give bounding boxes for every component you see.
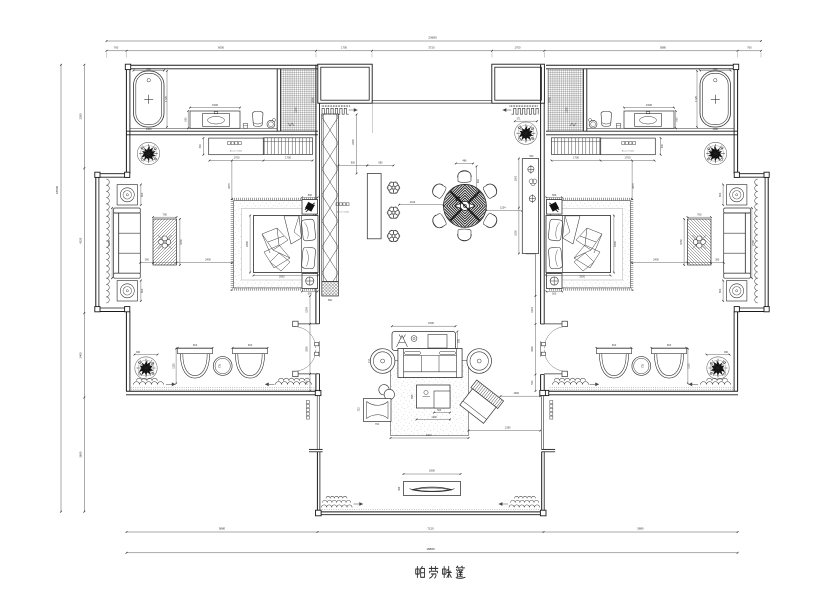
svg-text:1700: 1700 [625, 156, 631, 160]
svg-text:725: 725 [219, 363, 222, 368]
svg-text:1060: 1060 [713, 128, 719, 131]
svg-text:910: 910 [248, 343, 253, 347]
svg-text:900: 900 [351, 161, 356, 164]
svg-text:1204: 1204 [531, 307, 534, 313]
svg-text:800: 800 [147, 67, 152, 71]
svg-text:910: 910 [193, 343, 198, 347]
svg-text:500: 500 [531, 380, 534, 385]
svg-text:760: 760 [747, 45, 752, 49]
svg-text:550: 550 [185, 117, 188, 122]
svg-text:2400: 2400 [426, 434, 432, 437]
svg-text:2700: 2700 [107, 240, 111, 246]
svg-text:2000: 2000 [279, 276, 285, 279]
svg-text:600: 600 [141, 288, 144, 293]
svg-text:500: 500 [308, 194, 313, 197]
svg-text:1800: 1800 [531, 346, 534, 352]
svg-text:720: 720 [357, 407, 360, 412]
svg-text:764: 764 [375, 423, 380, 426]
svg-text:1204: 1204 [306, 307, 309, 313]
svg-text:500: 500 [308, 293, 313, 296]
svg-text:590: 590 [378, 161, 383, 164]
svg-text:5880: 5880 [637, 527, 644, 531]
svg-text:390: 390 [145, 259, 150, 262]
svg-text:2200: 2200 [352, 139, 355, 145]
svg-text:1700: 1700 [573, 156, 579, 160]
svg-text:Accent Table: Accent Table [230, 149, 243, 152]
svg-text:1135: 1135 [173, 363, 176, 369]
svg-text:600: 600 [719, 192, 722, 197]
svg-text:6000: 6000 [218, 45, 224, 49]
svg-text:910: 910 [667, 343, 672, 347]
svg-text:2000: 2000 [312, 97, 315, 103]
svg-text:1800: 1800 [613, 241, 617, 247]
svg-text:23680: 23680 [428, 36, 437, 40]
svg-text:1500: 1500 [428, 321, 434, 325]
svg-text:714: 714 [368, 358, 371, 363]
svg-text:500: 500 [328, 299, 333, 302]
svg-text:1260: 1260 [431, 416, 437, 419]
svg-text:3720: 3720 [429, 45, 435, 49]
svg-text:7120: 7120 [427, 527, 434, 531]
svg-text:1500: 1500 [515, 175, 518, 181]
svg-text:360: 360 [724, 351, 729, 354]
svg-text:371: 371 [517, 117, 522, 120]
svg-text:2430: 2430 [205, 258, 211, 262]
svg-text:390: 390 [715, 259, 720, 262]
svg-text:1014: 1014 [410, 201, 416, 204]
svg-text:500: 500 [458, 338, 461, 343]
svg-text:810: 810 [477, 178, 480, 183]
svg-text:500: 500 [306, 380, 309, 385]
svg-text:1050: 1050 [680, 239, 683, 245]
svg-text:520: 520 [437, 409, 442, 412]
svg-text:1500: 1500 [515, 230, 518, 236]
svg-text:1670: 1670 [632, 183, 635, 189]
svg-text:500: 500 [529, 155, 534, 158]
svg-text:700: 700 [697, 213, 702, 217]
svg-text:1800: 1800 [245, 241, 249, 247]
svg-text:600: 600 [141, 192, 144, 197]
svg-text:1500: 1500 [212, 103, 218, 107]
svg-text:1700: 1700 [234, 156, 240, 160]
svg-text:5880: 5880 [660, 45, 666, 49]
svg-text:1725: 1725 [694, 96, 698, 102]
svg-text:1200: 1200 [566, 107, 569, 113]
svg-text:1500: 1500 [646, 103, 652, 107]
svg-text:2700: 2700 [751, 240, 755, 246]
svg-text:600: 600 [719, 288, 722, 293]
svg-text:500: 500 [199, 144, 202, 149]
svg-text:4320: 4320 [79, 237, 83, 243]
svg-text:1060: 1060 [146, 128, 152, 131]
svg-text:910: 910 [612, 343, 617, 347]
svg-text:2400: 2400 [79, 352, 83, 358]
svg-text:760: 760 [114, 45, 119, 49]
svg-text:725: 725 [641, 363, 644, 368]
svg-text:2000: 2000 [579, 276, 585, 279]
svg-text:Accent Table: Accent Table [622, 149, 635, 152]
svg-text:18860: 18860 [55, 185, 59, 194]
svg-text:500: 500 [552, 194, 557, 197]
svg-text:1234: 1234 [500, 207, 506, 210]
svg-text:800: 800 [713, 67, 718, 71]
svg-text:350: 350 [398, 486, 401, 491]
svg-text:5880: 5880 [219, 527, 226, 531]
svg-text:Accent Table: Accent Table [337, 211, 350, 214]
svg-text:1700: 1700 [285, 156, 291, 160]
svg-text:700: 700 [163, 213, 168, 217]
svg-text:500: 500 [661, 144, 664, 149]
svg-text:486: 486 [462, 160, 467, 163]
svg-text:1670: 1670 [228, 183, 231, 189]
svg-text:655: 655 [411, 394, 414, 399]
svg-text:18880: 18880 [426, 547, 435, 551]
svg-text:2190: 2190 [505, 427, 511, 430]
svg-text:2430: 2430 [653, 258, 659, 262]
svg-text:2280: 2280 [79, 113, 83, 119]
svg-text:550: 550 [675, 117, 678, 122]
svg-text:3600: 3600 [79, 451, 83, 457]
svg-text:2000: 2000 [548, 97, 551, 103]
svg-text:1135: 1135 [688, 363, 691, 369]
svg-text:360: 360 [136, 351, 141, 354]
svg-text:1390: 1390 [513, 392, 519, 395]
svg-text:1200: 1200 [294, 107, 297, 113]
svg-text:1800: 1800 [429, 469, 435, 473]
svg-text:1800: 1800 [306, 346, 309, 352]
svg-text:1700: 1700 [515, 45, 521, 49]
svg-text:1700: 1700 [341, 45, 347, 49]
svg-text:500: 500 [552, 293, 557, 296]
svg-text:1725: 1725 [164, 96, 168, 102]
svg-text:1050: 1050 [180, 239, 183, 245]
